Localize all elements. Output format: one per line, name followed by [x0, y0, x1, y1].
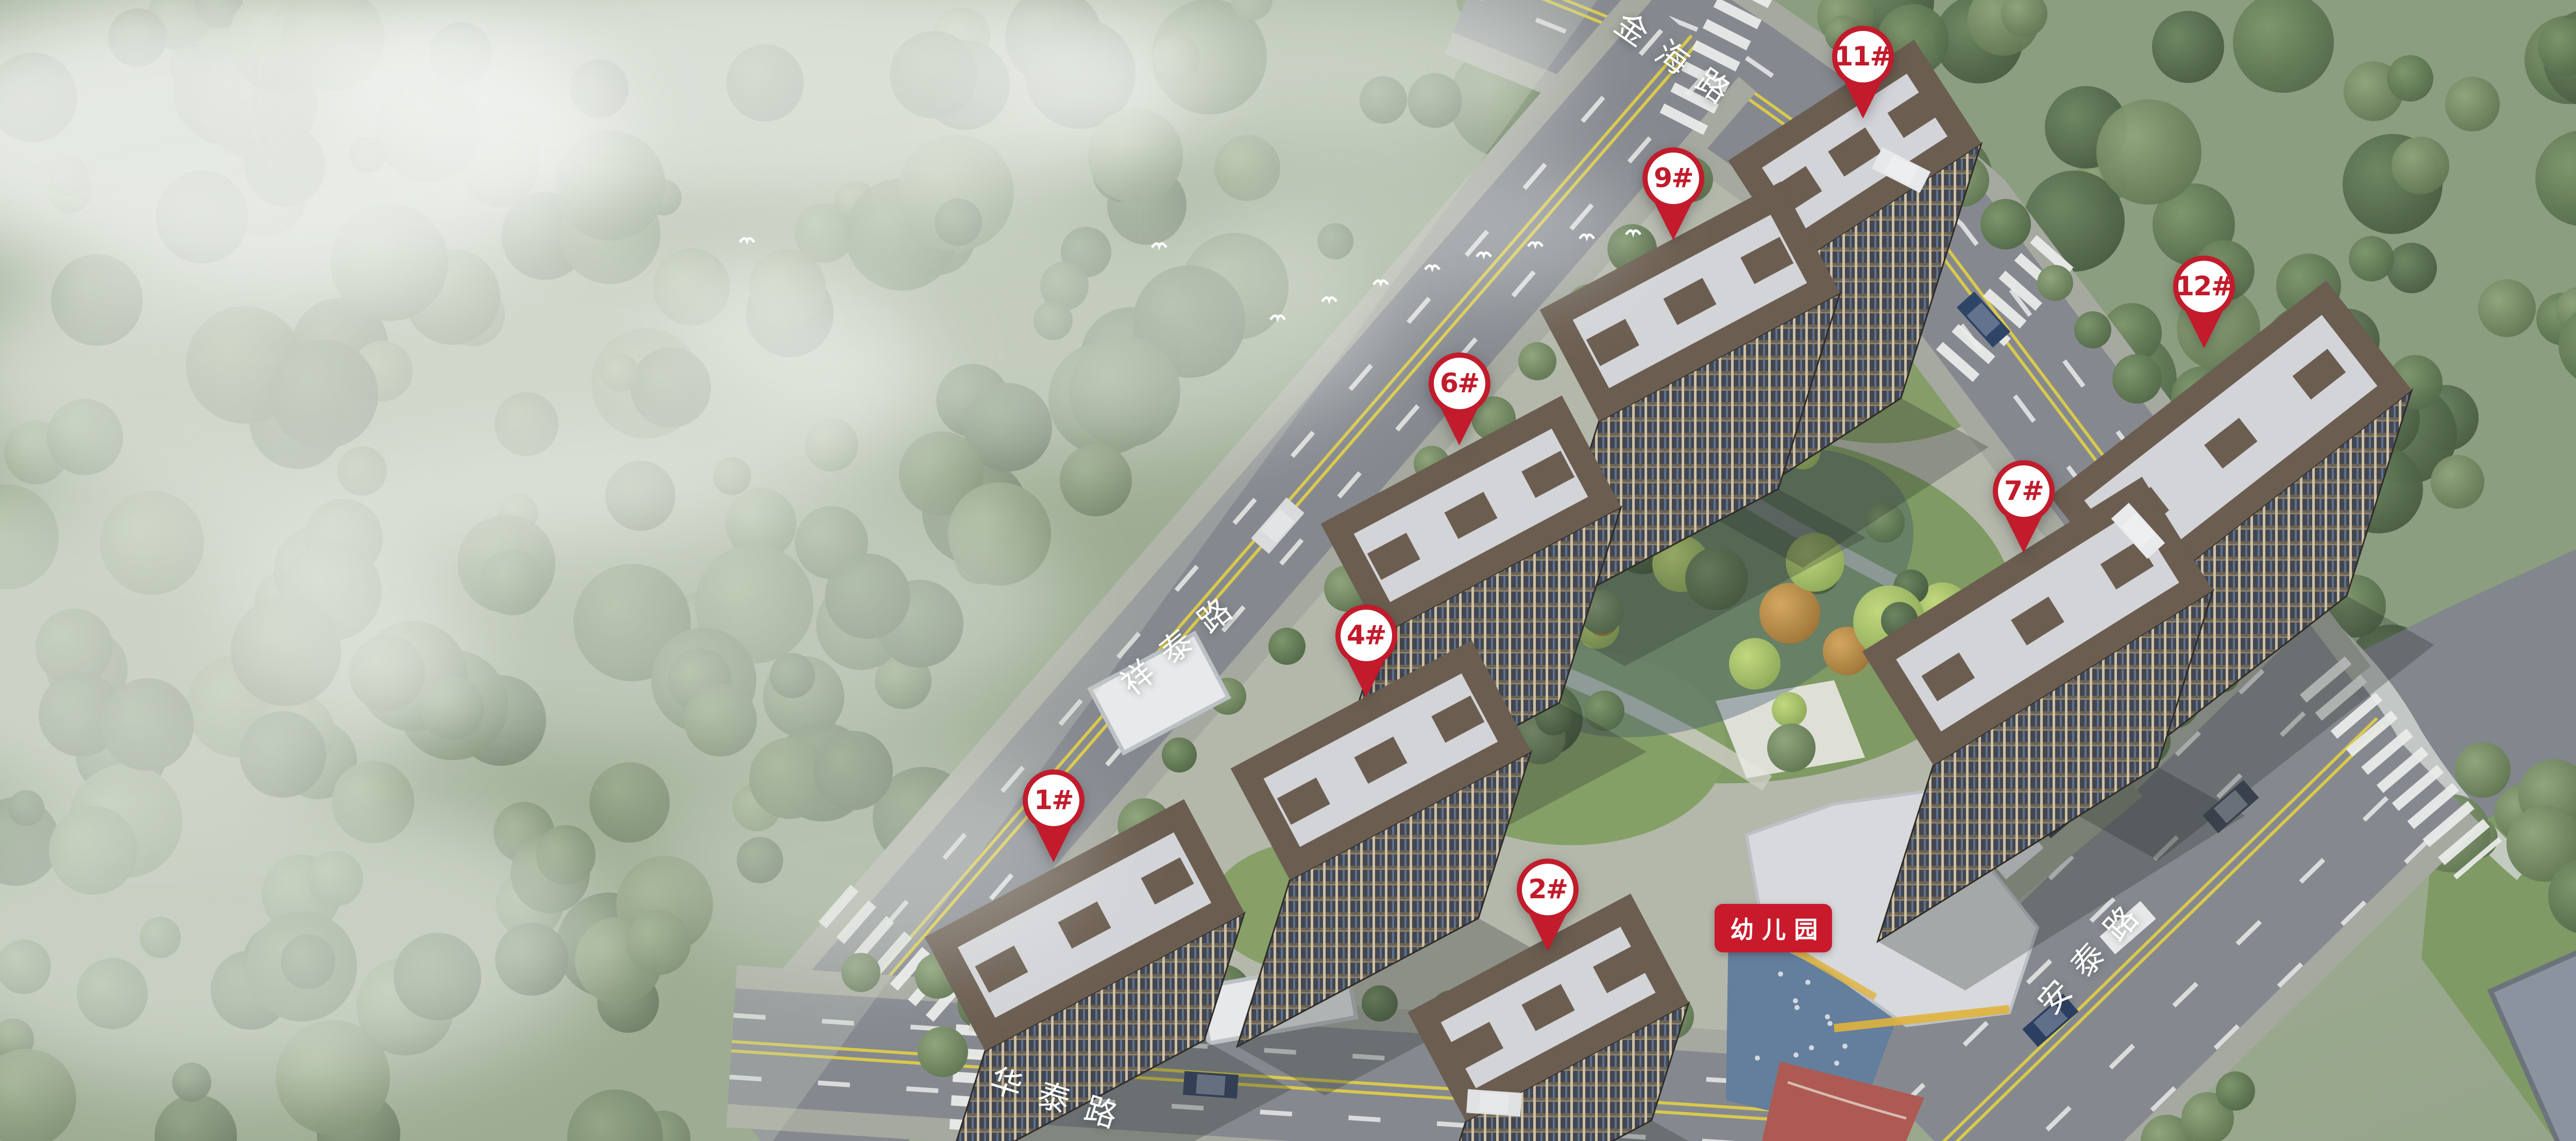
building-marker-label: 12# [2176, 273, 2232, 300]
building-marker-label: 9# [1654, 165, 1693, 192]
building-marker-6[interactable]: 6# [1428, 353, 1492, 446]
marker-pin-circle: 11# [1832, 26, 1894, 88]
kindergarten-badge: 幼儿园 [1715, 904, 1832, 952]
road-label-3: 安泰路 [2025, 881, 2159, 1022]
building-marker-label: 7# [2004, 478, 2043, 505]
marker-pin-circle: 2# [1517, 859, 1579, 920]
building-marker-label: 4# [1347, 622, 1386, 649]
building-marker-9[interactable]: 9# [1641, 147, 1705, 241]
building-marker-7[interactable]: 7# [1992, 460, 2056, 554]
aerial-rendering: 幼儿园 鸟瞰图 1# 2# 4# 6# 7# 9# 11# [0, 0, 2576, 1141]
marker-pin-circle: 4# [1335, 605, 1397, 666]
marker-pin-circle: 12# [2173, 256, 2235, 317]
road-label-1: 金海路 [1607, 0, 1755, 122]
building-marker-2[interactable]: 2# [1516, 859, 1580, 952]
marker-pin-circle: 7# [1993, 460, 2055, 522]
building-marker-label: 2# [1528, 876, 1567, 903]
building-marker-4[interactable]: 4# [1334, 605, 1398, 698]
marker-pin-circle: 9# [1642, 147, 1704, 209]
labels-overlay: 幼儿园 鸟瞰图 1# 2# 4# 6# 7# 9# 11# [0, 0, 2576, 1141]
building-marker-1[interactable]: 1# [1022, 769, 1086, 863]
building-marker-label: 11# [1835, 43, 1891, 70]
marker-pin-circle: 1# [1023, 769, 1084, 831]
marker-pin-circle: 6# [1429, 353, 1490, 414]
building-marker-11[interactable]: 11# [1831, 26, 1895, 120]
building-marker-12[interactable]: 12# [2172, 256, 2236, 349]
road-label-2: 祥泰路 [1109, 574, 1253, 703]
road-label-4: 华泰路 [985, 1054, 1141, 1141]
building-marker-label: 1# [1034, 787, 1073, 814]
building-marker-label: 6# [1440, 370, 1479, 397]
